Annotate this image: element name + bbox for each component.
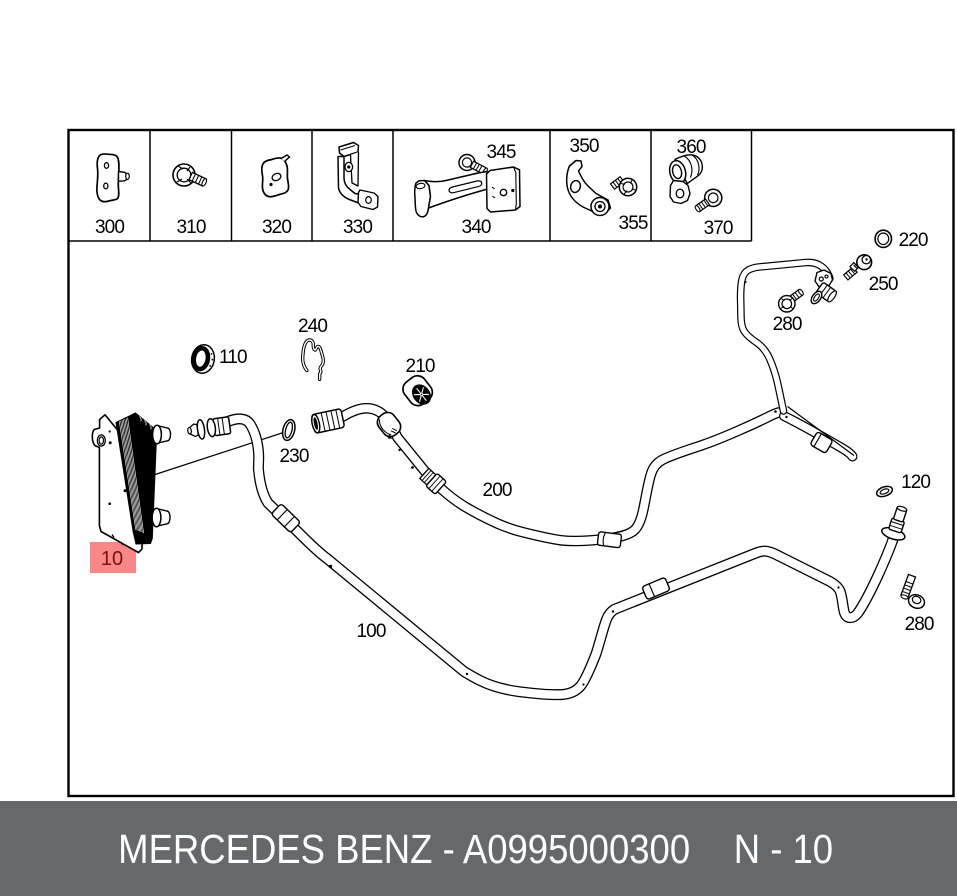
svg-text:210: 210 <box>406 356 435 377</box>
svg-text:330: 330 <box>343 217 372 238</box>
svg-text:320: 320 <box>262 217 291 238</box>
svg-text:310: 310 <box>177 217 206 238</box>
svg-text:240: 240 <box>298 316 327 337</box>
svg-text:230: 230 <box>280 446 309 467</box>
svg-text:370: 370 <box>704 218 733 239</box>
svg-text:300: 300 <box>95 217 124 238</box>
svg-text:250: 250 <box>869 274 898 295</box>
svg-text:120: 120 <box>901 472 930 493</box>
svg-text:350: 350 <box>570 136 599 157</box>
svg-text:100: 100 <box>357 621 386 642</box>
svg-text:280: 280 <box>773 314 802 335</box>
svg-text:340: 340 <box>462 217 491 238</box>
svg-text:345: 345 <box>487 142 516 163</box>
svg-text:355: 355 <box>619 213 648 234</box>
svg-text:10: 10 <box>101 548 123 570</box>
svg-text:110: 110 <box>219 347 247 368</box>
svg-text:280: 280 <box>905 614 934 635</box>
svg-text:220: 220 <box>899 230 928 251</box>
svg-text:200: 200 <box>483 480 512 501</box>
